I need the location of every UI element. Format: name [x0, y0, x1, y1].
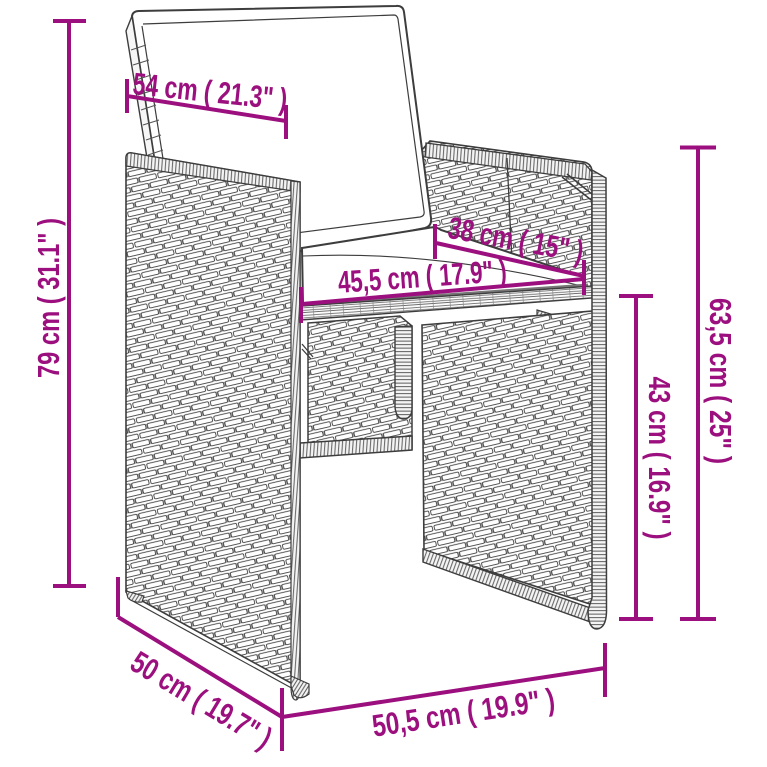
svg-text:63,5 cm ( 25" ): 63,5 cm ( 25" ) [703, 298, 738, 464]
svg-text:79 cm ( 31.1" ): 79 cm ( 31.1" ) [31, 218, 66, 378]
svg-text:43 cm ( 16.9" ): 43 cm ( 16.9" ) [642, 377, 677, 540]
